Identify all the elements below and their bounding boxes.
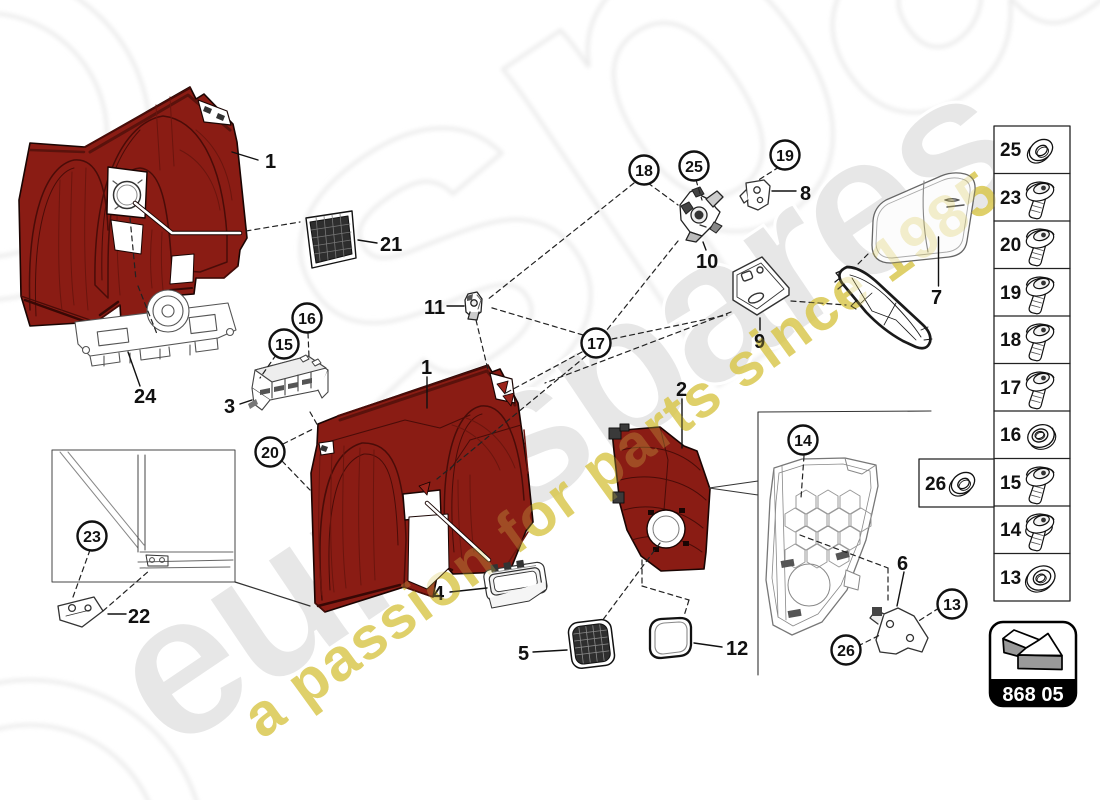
svg-text:7: 7 [931, 287, 942, 309]
svg-text:24: 24 [134, 386, 157, 408]
svg-text:26: 26 [837, 643, 855, 660]
svg-text:14: 14 [794, 433, 812, 450]
svg-text:15: 15 [1000, 473, 1022, 494]
svg-text:1: 1 [421, 357, 432, 379]
svg-text:20: 20 [1000, 235, 1021, 256]
svg-text:18: 18 [635, 163, 653, 180]
svg-text:22: 22 [128, 606, 150, 628]
svg-text:10: 10 [696, 251, 718, 273]
svg-text:868 05: 868 05 [1002, 684, 1063, 706]
svg-text:14: 14 [1000, 520, 1022, 541]
svg-text:19: 19 [776, 148, 794, 165]
svg-text:11: 11 [424, 297, 445, 319]
svg-text:13: 13 [1000, 568, 1021, 589]
svg-text:18: 18 [1000, 330, 1021, 351]
svg-text:23: 23 [83, 529, 101, 546]
svg-text:16: 16 [1000, 425, 1021, 446]
svg-text:1: 1 [265, 151, 276, 173]
svg-text:3: 3 [224, 396, 235, 418]
svg-text:19: 19 [1000, 283, 1021, 304]
svg-text:16: 16 [298, 311, 316, 328]
svg-text:25: 25 [685, 159, 703, 176]
svg-text:26: 26 [925, 474, 946, 495]
svg-text:5: 5 [518, 643, 529, 665]
svg-text:8: 8 [800, 183, 811, 205]
svg-text:25: 25 [1000, 140, 1022, 161]
svg-text:17: 17 [587, 336, 605, 353]
svg-text:21: 21 [380, 234, 402, 256]
svg-text:13: 13 [943, 597, 961, 614]
svg-text:17: 17 [1000, 378, 1021, 399]
svg-text:12: 12 [726, 638, 748, 660]
svg-text:15: 15 [275, 337, 293, 354]
svg-text:6: 6 [897, 553, 908, 575]
svg-text:20: 20 [261, 445, 279, 462]
